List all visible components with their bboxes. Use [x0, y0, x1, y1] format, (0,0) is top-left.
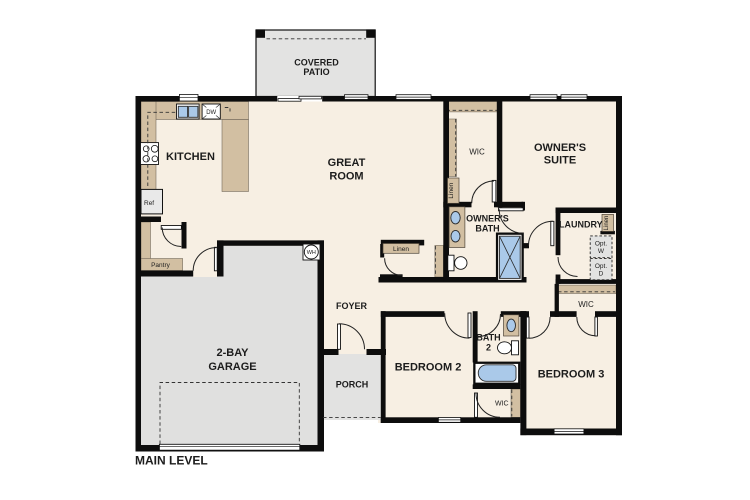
svg-text:Ref: Ref — [144, 200, 154, 207]
svg-text:BEDROOM 3: BEDROOM 3 — [538, 369, 605, 381]
svg-text:LAUNDRY: LAUNDRY — [559, 220, 603, 230]
svg-text:Opt.: Opt. — [595, 240, 607, 247]
svg-text:Opt.: Opt. — [595, 263, 607, 270]
svg-text:Pantry: Pantry — [151, 262, 171, 269]
svg-text:SUITE: SUITE — [544, 154, 576, 166]
svg-text:WH: WH — [307, 250, 316, 256]
svg-text:W: W — [598, 248, 605, 255]
svg-text:PATIO: PATIO — [303, 67, 329, 77]
svg-text:OWNER'S: OWNER'S — [534, 142, 586, 154]
svg-text:BATH: BATH — [475, 223, 499, 233]
svg-text:PORCH: PORCH — [336, 379, 369, 389]
svg-text:Linen: Linen — [604, 216, 610, 231]
svg-text:2-BAY: 2-BAY — [217, 347, 250, 359]
svg-text:FOYER: FOYER — [336, 301, 368, 311]
svg-text:GARAGE: GARAGE — [208, 361, 256, 373]
svg-text:Linen: Linen — [393, 246, 409, 253]
svg-text:GREAT: GREAT — [328, 157, 366, 169]
svg-text:BATH: BATH — [476, 332, 500, 342]
svg-text:D: D — [599, 271, 604, 278]
svg-text:2: 2 — [486, 342, 491, 352]
svg-text:DW: DW — [206, 110, 216, 116]
svg-text:WIC: WIC — [578, 300, 594, 309]
svg-text:OWNER'S: OWNER'S — [466, 213, 509, 223]
svg-text:WIC: WIC — [495, 401, 509, 408]
svg-text:KITCHEN: KITCHEN — [166, 151, 215, 163]
svg-text:ROOM: ROOM — [329, 170, 363, 182]
svg-text:WIC: WIC — [469, 148, 485, 157]
svg-text:MAIN LEVEL: MAIN LEVEL — [135, 454, 208, 468]
svg-text:COVERED: COVERED — [294, 58, 339, 68]
svg-text:BEDROOM 2: BEDROOM 2 — [395, 362, 462, 374]
svg-text:Linen: Linen — [448, 182, 455, 198]
